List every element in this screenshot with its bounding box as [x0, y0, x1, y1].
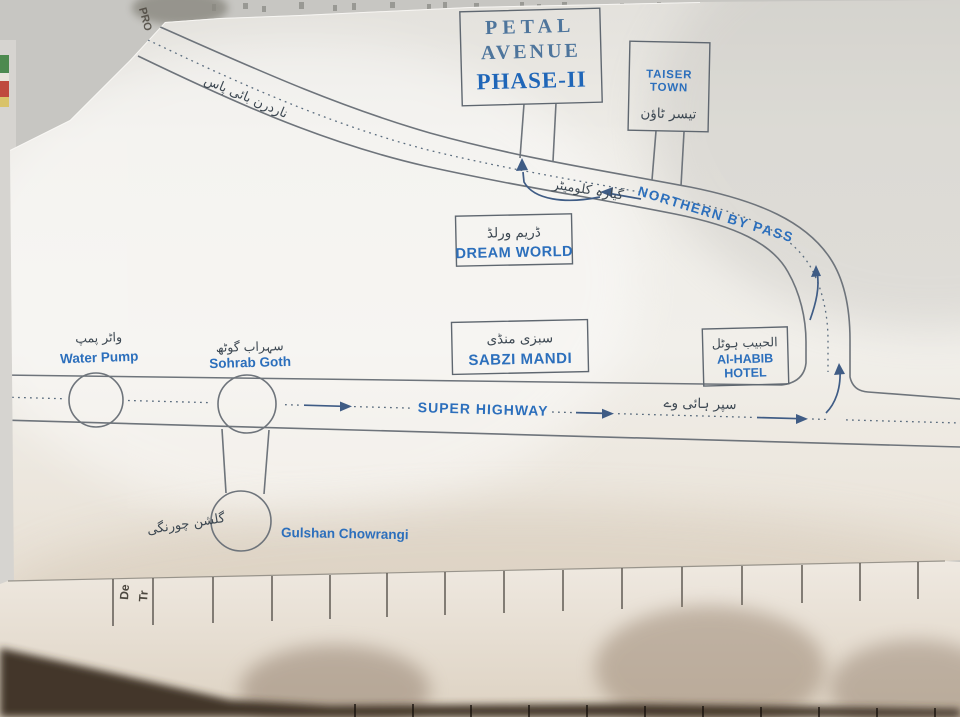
- petal-avenue-title-line1: PETAL: [485, 15, 576, 39]
- sohrab-goth-labels: سہراب گوٹھ Sohrab Goth: [209, 338, 292, 371]
- gulshan-chowrangi-label: Gulshan Chowrangi: [281, 525, 409, 542]
- petal-avenue-title-line2: AVENUE: [481, 40, 581, 65]
- sabzi-mandi-label: SABZI MANDI: [468, 350, 572, 369]
- super-highway-urdu-label: سپر ہائی وے: [663, 395, 736, 413]
- dream-world-urdu-label: ڈریم ورلڈ: [487, 224, 541, 241]
- taiser-town-label-line1: TAISER: [646, 69, 692, 82]
- side-object: [0, 55, 9, 107]
- taiser-town-label-line2: TOWN: [650, 82, 688, 95]
- al-habib-hotel-urdu-label: الحبیب ہوٹل: [712, 334, 778, 352]
- al-habib-hotel-label-line1: Al-HABIB: [717, 351, 774, 366]
- water-pump-label: Water Pump: [60, 349, 139, 367]
- map-photo-canvas: PRO: [0, 0, 960, 717]
- form-fragment-col1: De: [117, 584, 132, 601]
- water-pump-urdu-label: واٹر پمپ: [75, 329, 122, 347]
- petal-avenue-title-line3: PHASE-II: [476, 67, 587, 95]
- sohrab-goth-urdu-label: سہراب گوٹھ: [216, 338, 284, 356]
- form-fragment-col2: Tr: [136, 590, 151, 603]
- taiser-town-urdu-label: تیسر ٹاؤن: [640, 105, 696, 122]
- photo-of-location-map: PRO: [0, 0, 960, 717]
- sohrab-goth-label: Sohrab Goth: [209, 354, 291, 371]
- al-habib-hotel-label-line2: HOTEL: [724, 365, 767, 380]
- dream-world-label: DREAM WORLD: [455, 244, 573, 262]
- sabzi-mandi-urdu-label: سبزی منڈی: [486, 330, 553, 347]
